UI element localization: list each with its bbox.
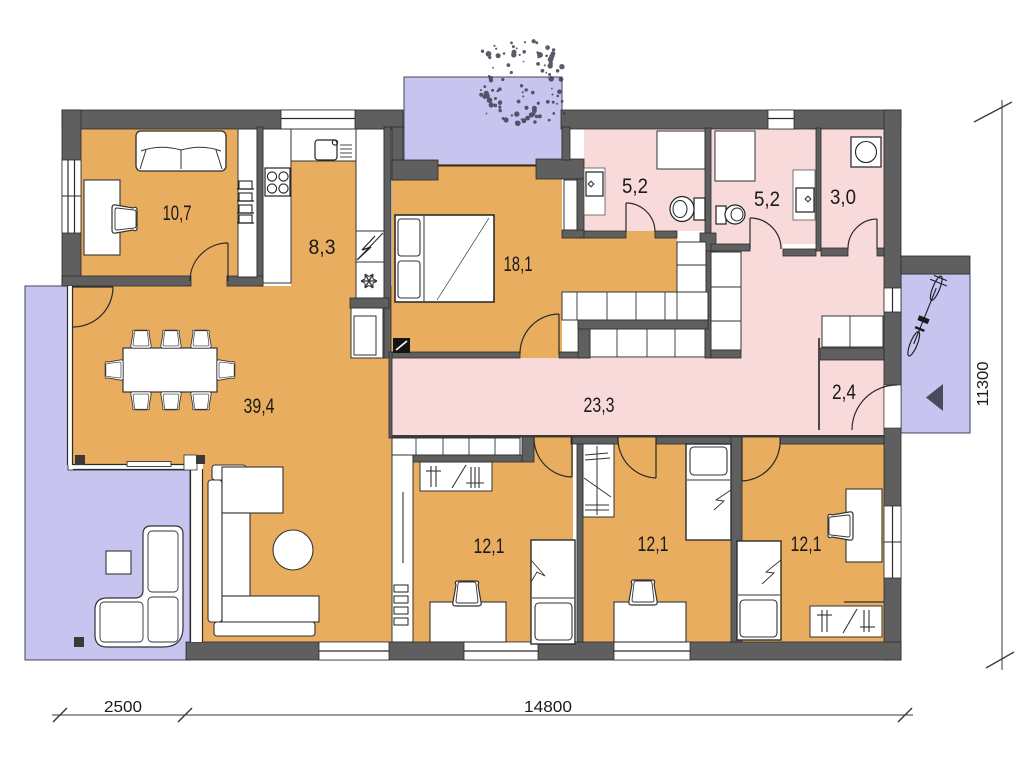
svg-text:18,1: 18,1: [504, 253, 533, 276]
svg-text:5,2: 5,2: [754, 188, 780, 211]
svg-text:8,3: 8,3: [309, 236, 336, 259]
svg-text:12,1: 12,1: [791, 533, 822, 556]
svg-text:2500: 2500: [104, 699, 142, 716]
svg-text:12,1: 12,1: [474, 535, 505, 558]
svg-text:11300: 11300: [975, 361, 992, 406]
svg-text:39,4: 39,4: [244, 395, 275, 418]
svg-text:14800: 14800: [524, 699, 572, 716]
svg-text:5,2: 5,2: [622, 175, 648, 198]
svg-text:12,1: 12,1: [638, 533, 669, 556]
svg-text:10,7: 10,7: [163, 202, 192, 225]
svg-text:3,0: 3,0: [830, 186, 856, 209]
svg-text:2,4: 2,4: [832, 381, 856, 404]
svg-text:23,3: 23,3: [584, 394, 615, 417]
